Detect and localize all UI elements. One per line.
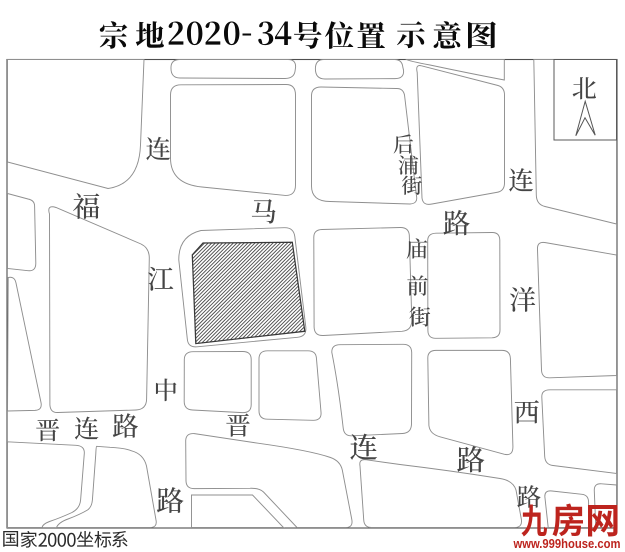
svg-text:www.999house.com: www.999house.com bbox=[513, 536, 621, 551]
